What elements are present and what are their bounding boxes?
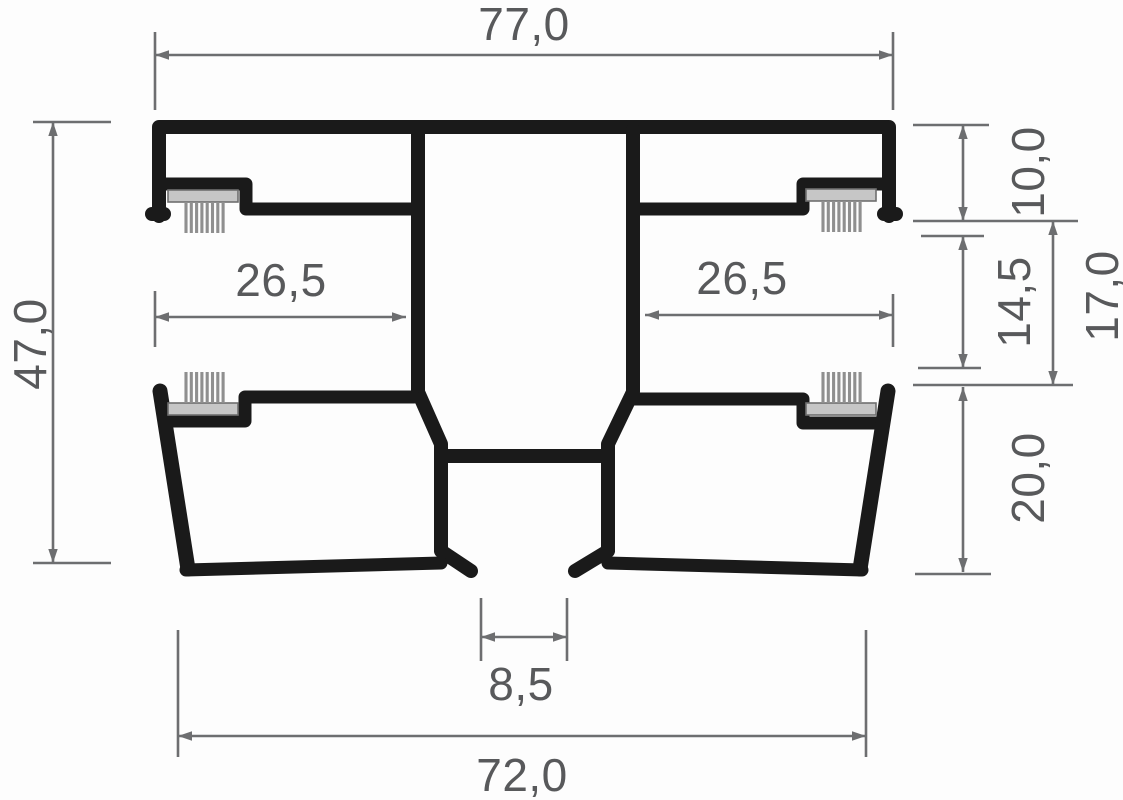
profile-bottom-right-floor	[608, 563, 862, 570]
dim-left-rebate-width: 26,5	[155, 254, 406, 347]
dim-overall-width-top: 77,0	[155, 0, 893, 110]
dim-overall-width-bottom: 72,0	[178, 630, 866, 800]
dim-overall-height: 47,0	[4, 122, 111, 563]
dim-label-72: 72,0	[476, 749, 568, 800]
dim-label-26-right: 26,5	[696, 252, 788, 304]
profile-central-web-left	[418, 130, 441, 550]
brush-seal-bottom-right	[806, 372, 876, 415]
dim-label-10: 10,0	[1002, 126, 1054, 218]
dim-right-rebate-width: 26,5	[645, 252, 893, 347]
dim-label-17: 17,0	[1076, 250, 1123, 342]
profile-body	[152, 127, 896, 571]
dim-bottom-slot-width: 8,5	[481, 598, 567, 710]
dim-mid-step-height: 14,5	[918, 236, 1040, 368]
dim-label-8: 8,5	[488, 658, 553, 710]
profile-bottom-left-floor	[186, 563, 441, 570]
dim-bottom-chamber-height: 20,0	[915, 387, 1054, 574]
technical-drawing-canvas: 77,0 47,0 26,5 26,5 10,0	[0, 0, 1123, 800]
profile-central-web-right	[608, 130, 633, 550]
dim-top-step-height: 10,0	[913, 125, 1078, 221]
dim-label-47: 47,0	[4, 298, 56, 390]
brush-seal-bottom-left	[168, 372, 238, 415]
dim-label-26-left: 26,5	[235, 254, 327, 306]
brush-seal-top-left	[168, 190, 238, 233]
dim-label-77: 77,0	[478, 0, 570, 50]
brush-seal-top-right	[806, 189, 876, 232]
dim-label-20: 20,0	[1002, 432, 1054, 524]
profile-drawing-svg: 77,0 47,0 26,5 26,5 10,0	[0, 0, 1123, 800]
dim-label-14: 14,5	[988, 256, 1040, 348]
